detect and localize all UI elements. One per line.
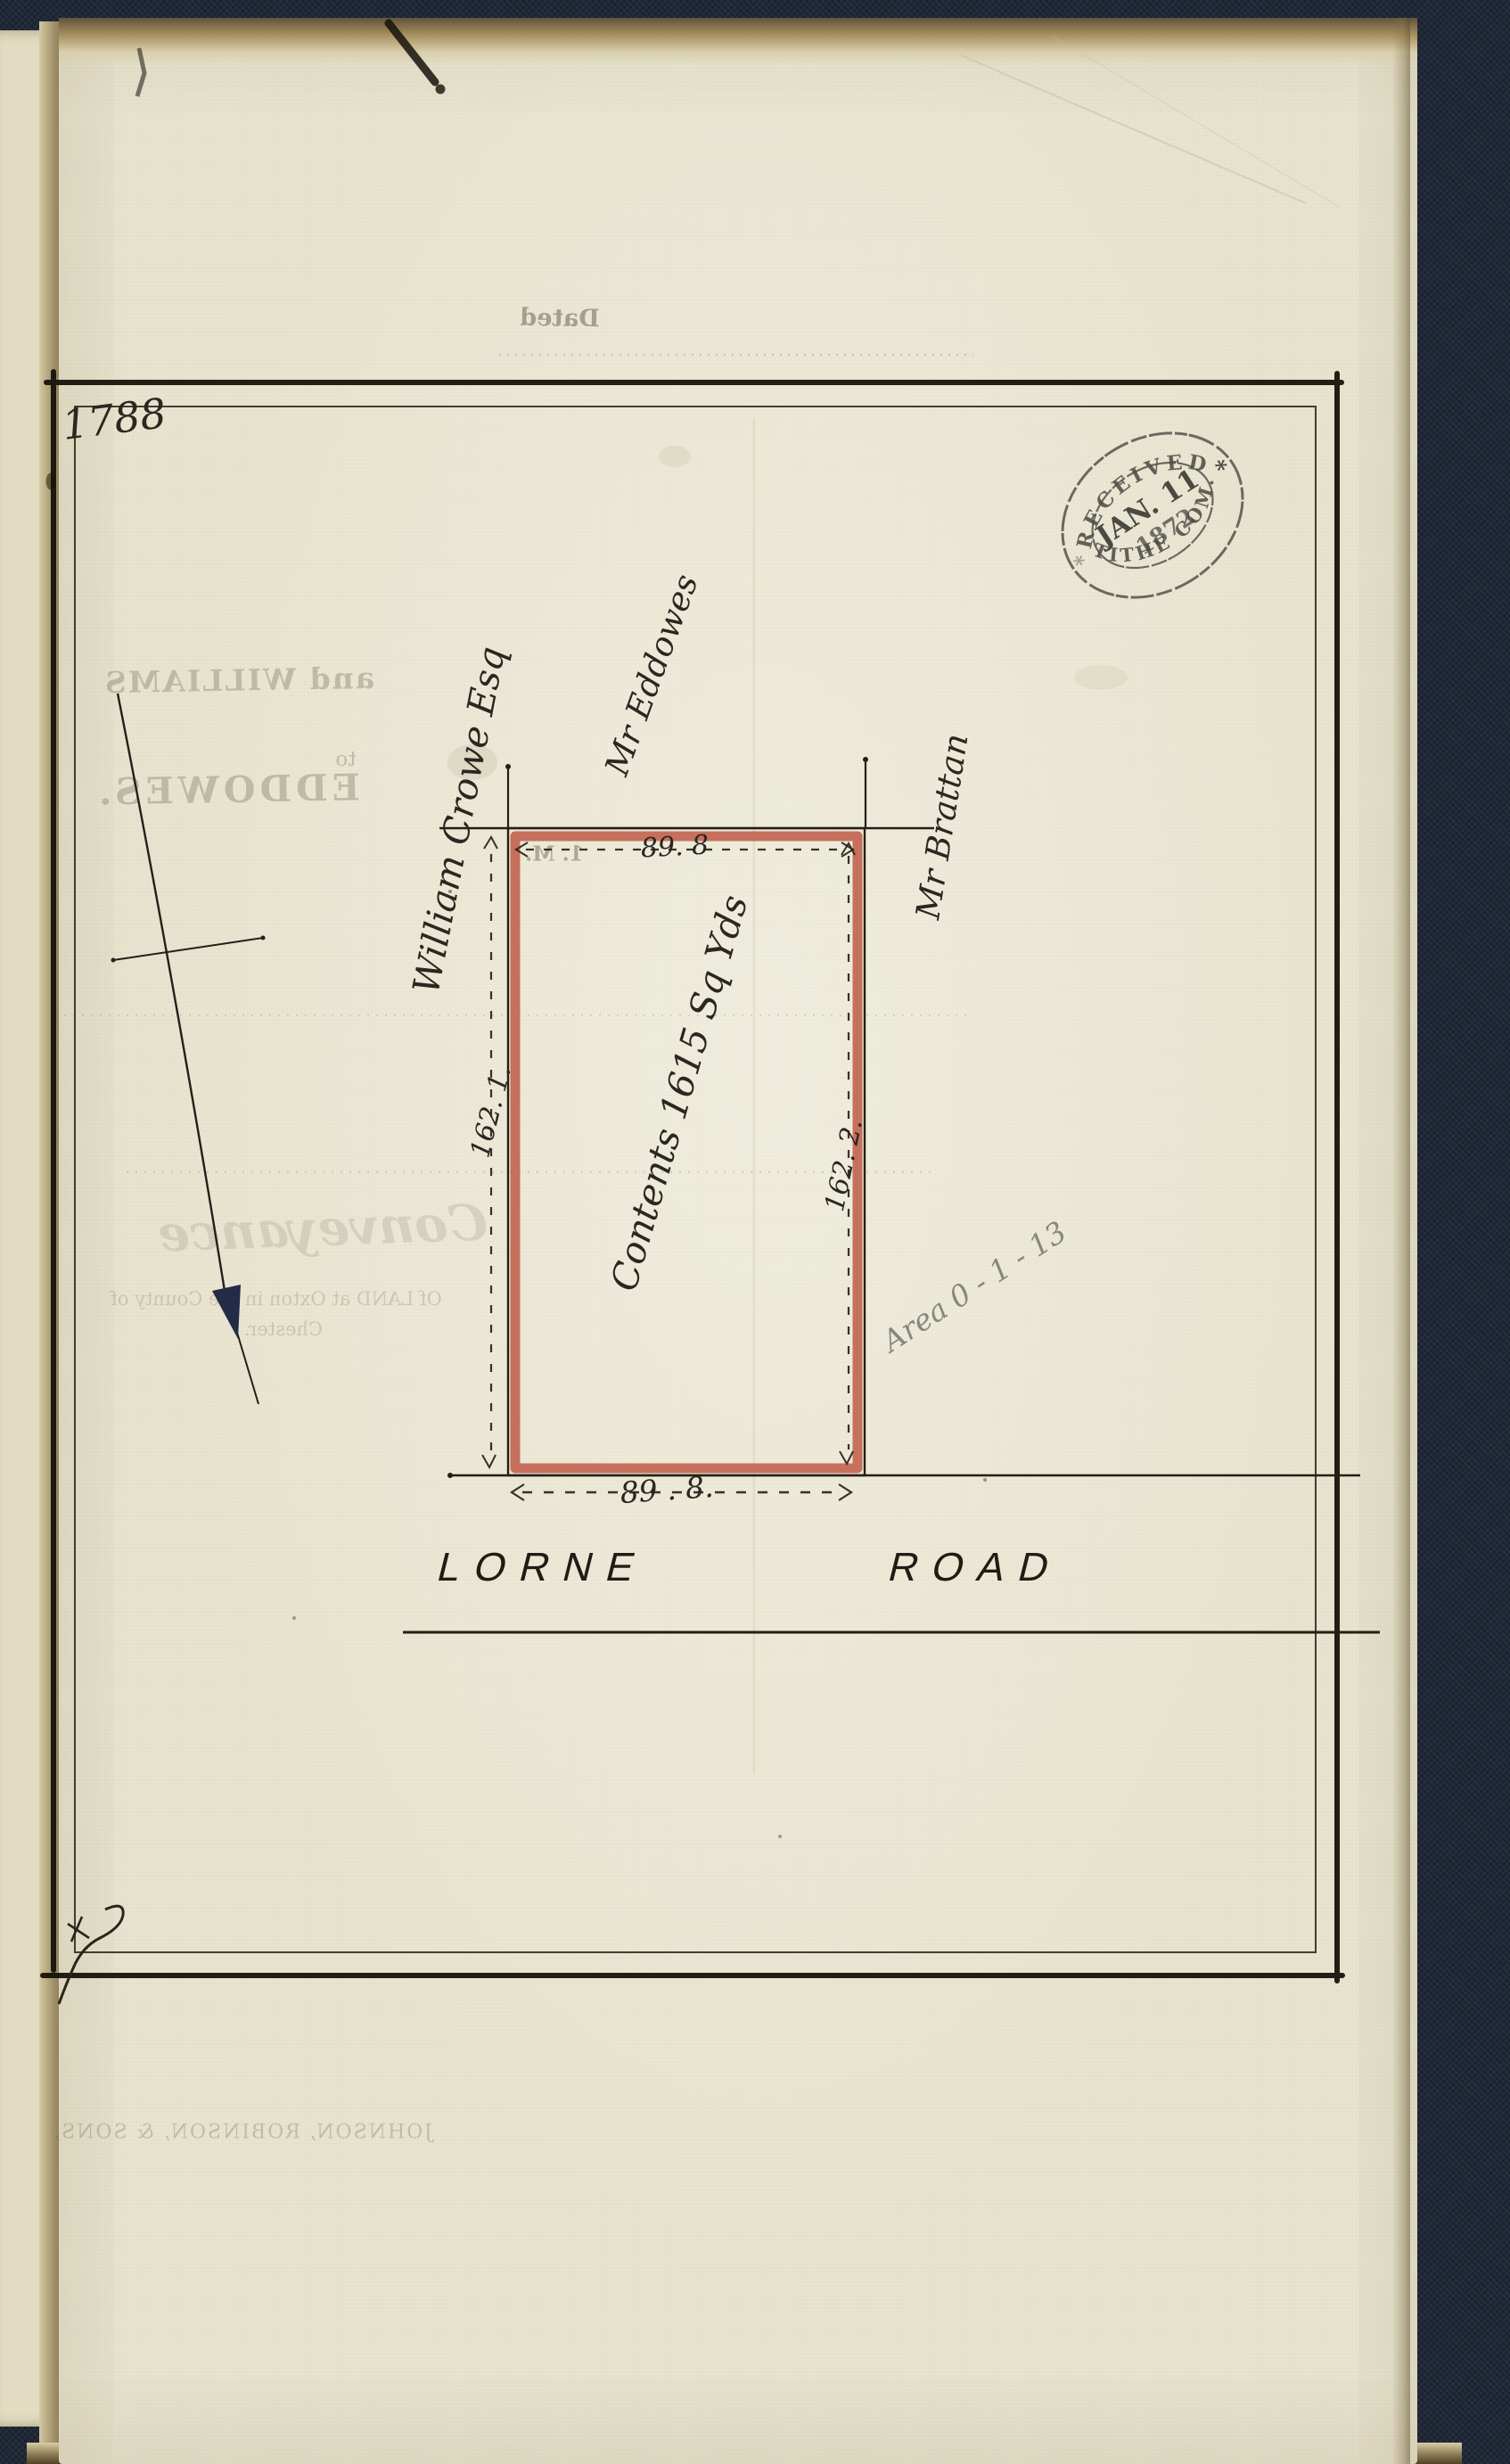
road-name: LORNE ROAD <box>439 1544 1063 1590</box>
north-arrow-head <box>212 1285 241 1339</box>
survey-corner-stubs <box>508 762 866 828</box>
road-name-word1: LORNE <box>433 1544 654 1590</box>
paper-stains <box>292 446 1128 1838</box>
paper-creases <box>754 36 1339 1774</box>
clerk-check-flourish <box>59 1906 123 2004</box>
frame-inner-line <box>75 407 1316 1952</box>
plan-linework: RECEIVED TITHE COM. JAN. 11 1872 * * <box>0 0 1510 2464</box>
stamp-asterisk-left: * <box>1069 549 1093 577</box>
scanned-deed-plan-page: Dated and WILLIAMS to EDDOWES. 1. M. Con… <box>0 0 1510 2464</box>
road-name-word2: ROAD <box>884 1544 1069 1590</box>
measure-bottom-value: 89 . 8. <box>619 1469 714 1510</box>
plot-black-outline <box>508 828 865 1475</box>
received-stamp: RECEIVED TITHE COM. JAN. 11 1872 * * <box>1031 399 1274 630</box>
north-arrow <box>111 694 266 1404</box>
plot-red-outline <box>515 836 858 1468</box>
survey-plot <box>403 757 1380 1632</box>
measure-top-value: 89. 8 <box>640 830 710 865</box>
